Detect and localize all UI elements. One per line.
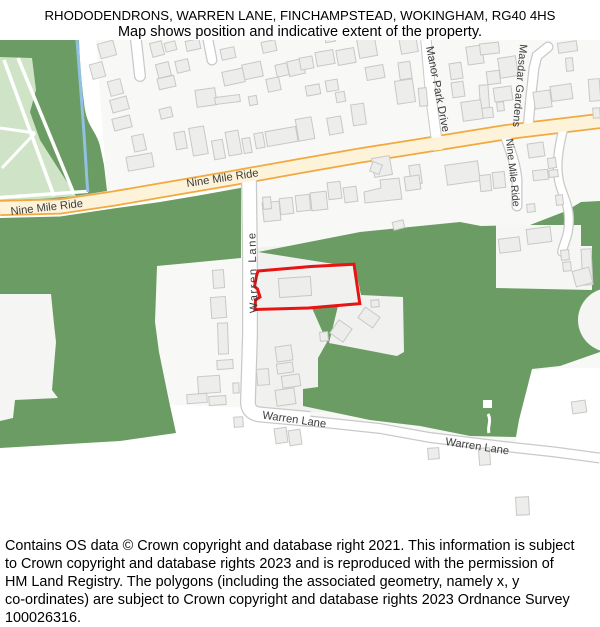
svg-text:Warren Lane: Warren Lane xyxy=(246,231,260,313)
